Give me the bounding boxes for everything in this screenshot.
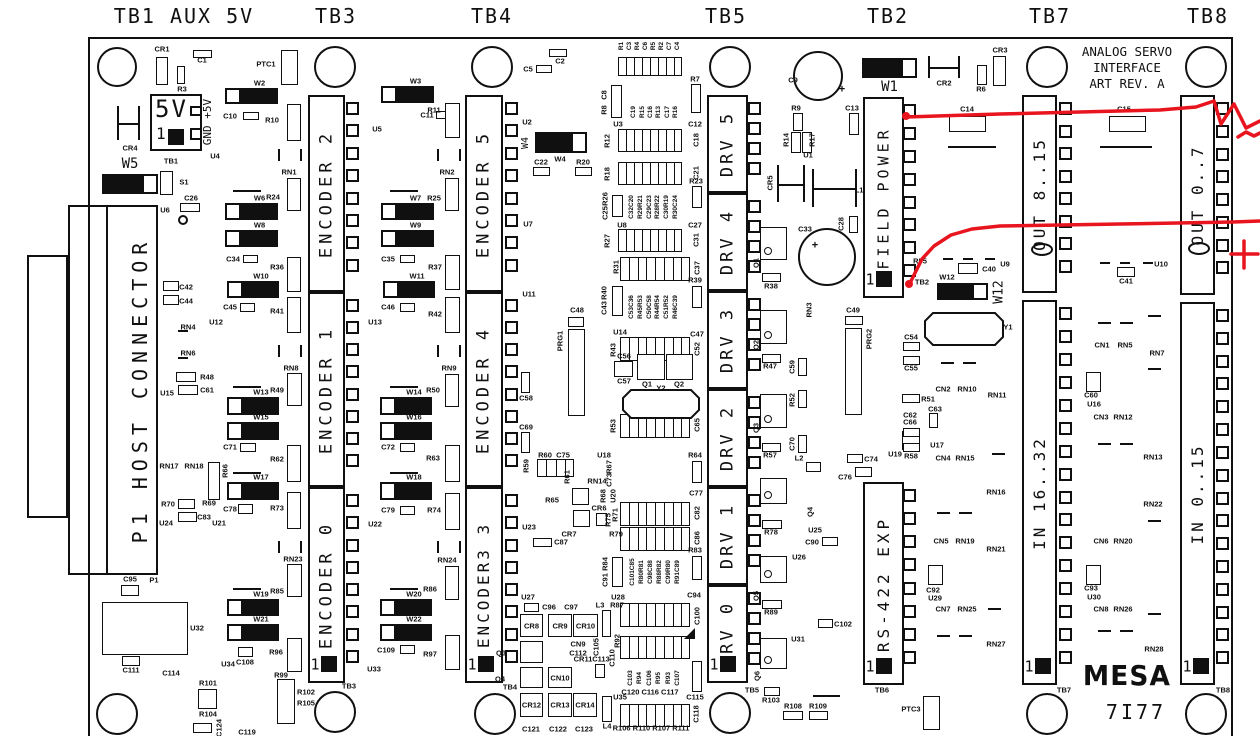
component-label: R58 (904, 452, 918, 460)
component-label: C109 (377, 646, 395, 654)
component-outline (793, 113, 803, 131)
label-tb2: TB2 (848, 6, 928, 26)
component-outline (568, 329, 585, 416)
component-ibeam (812, 169, 857, 207)
component-label: R14 (782, 133, 790, 147)
connector-label: ENCODER 4 (476, 325, 493, 453)
jumper-label: W6 (254, 194, 265, 202)
component-outline (208, 462, 220, 500)
pin (346, 192, 359, 205)
dash-mark (1098, 630, 1111, 632)
pcb-diagram: TB1 AUX 5V TB3 TB4 TB5 TB2 TB7 TB8 ANALO… (0, 0, 1260, 736)
pin (1059, 215, 1072, 228)
pin1-label: 1 (709, 658, 718, 673)
component-label: R12 (603, 134, 611, 148)
pin1-label: 1 (310, 658, 319, 673)
dash-mark (390, 588, 418, 590)
mounting-hole (1185, 46, 1227, 88)
component-outline (287, 178, 301, 211)
component-outline (121, 585, 139, 596)
resistor-array-divider (638, 603, 639, 627)
component-outline (287, 638, 302, 672)
resistor-array-divider (634, 162, 635, 185)
component-label: C27 (688, 221, 702, 229)
component-outline (612, 557, 623, 587)
resistor-array-divider (681, 414, 682, 438)
jumper-open-cell (225, 203, 241, 220)
component-label: C60 (1084, 391, 1098, 399)
component-ibeam (117, 106, 140, 140)
component-outline (102, 602, 188, 655)
component-label: C15 (1117, 105, 1131, 113)
component-label: CN9 (570, 640, 585, 648)
dash-mark (948, 146, 996, 148)
pin (346, 236, 359, 249)
dash-mark (963, 362, 976, 364)
connector-oval (1031, 243, 1053, 256)
dash-mark (985, 258, 995, 260)
component-label: U17 (930, 441, 944, 449)
resistor-array-divider (629, 636, 630, 659)
component-outline (533, 167, 550, 176)
component-outline (958, 263, 978, 274)
jumper-open-cell (142, 174, 158, 194)
component-label: C22 (534, 158, 548, 166)
pin (1216, 170, 1229, 183)
pin (903, 605, 916, 618)
pin (505, 583, 518, 596)
jumper-open-cell (381, 86, 397, 103)
jumper-label: W9 (410, 221, 421, 229)
component-label: C120 C116 C117 (621, 688, 678, 696)
component-label: R43 (609, 343, 617, 357)
component-label: PTC3 (901, 705, 920, 713)
tb-designator: TB4 (503, 683, 517, 691)
component-label: U16 (1087, 400, 1101, 408)
component-label: R95 (656, 672, 663, 684)
component-label: R67 (605, 460, 613, 474)
jumper-open-cell (227, 599, 243, 616)
dash-mark (233, 588, 261, 590)
component-label: R52 (788, 393, 796, 407)
component-outline (238, 504, 253, 514)
connector-label: RS-422 EXP (876, 515, 892, 651)
component-outline (903, 428, 920, 437)
pin (346, 583, 359, 596)
mounting-hole (1026, 46, 1068, 88)
component-outline (400, 443, 415, 452)
pin (505, 192, 518, 205)
resistor-array-divider (673, 502, 674, 526)
resistor-array-divider (626, 57, 627, 76)
component-outline (692, 661, 702, 692)
dash-mark (459, 345, 461, 357)
resistor-array-divider (658, 57, 659, 76)
resistor-array-divider (634, 129, 635, 152)
component-label: RN21 (986, 545, 1005, 553)
component-label: RN18 (184, 462, 203, 470)
component-label: RN3 (805, 302, 813, 317)
component-ibeam (928, 56, 960, 78)
component-label: C114 (162, 669, 180, 677)
component-label: C108 (236, 658, 254, 666)
component-outline (928, 565, 943, 585)
component-label: RN12 (1113, 413, 1132, 421)
pin (1216, 102, 1229, 115)
component-label: R3 (177, 85, 187, 93)
pin (1059, 170, 1072, 183)
jumper-open-cell (380, 624, 396, 641)
connector-label: ENCODER3 3 (476, 522, 492, 648)
component-label: C56 (617, 352, 631, 360)
pin (346, 388, 359, 401)
component-outline (760, 556, 787, 583)
component-label: R80R81 (639, 560, 646, 584)
dash-mark (233, 472, 261, 474)
pin (1059, 353, 1072, 366)
component-label: C7 (667, 42, 674, 50)
component-dot (764, 656, 772, 664)
connector-label: ENCODER 1 (318, 325, 335, 453)
tb-designator: TB2 (915, 278, 929, 286)
component-label: RN25 (957, 605, 976, 613)
component-label: C12 (688, 120, 702, 128)
resistor-array-divider (638, 502, 639, 526)
pin (748, 142, 761, 155)
dash-mark (233, 190, 261, 192)
component-label: U12 (209, 318, 223, 326)
component-label: C54 (904, 333, 918, 341)
component-label: RN5 (1117, 341, 1132, 349)
pin (346, 299, 359, 312)
component-outline (798, 390, 807, 408)
component-outline (524, 603, 539, 612)
resistor-array-divider (658, 229, 659, 252)
component-outline (287, 104, 301, 141)
component-label: PRG2 (865, 329, 873, 349)
pin (1216, 148, 1229, 161)
component-label: R18 (603, 167, 611, 181)
dash-mark (459, 541, 461, 553)
pin (903, 582, 916, 595)
component-label: C91 (601, 573, 609, 587)
component-label: C57 (617, 377, 631, 385)
component-label: C74 (864, 455, 878, 463)
component-label: C28 (837, 217, 845, 231)
pin (1059, 536, 1072, 549)
component-label: U7 (523, 220, 533, 228)
tb1-5v-label: 5V (155, 97, 188, 121)
component-label: C124 (215, 719, 223, 736)
component-label: R36 (270, 263, 284, 271)
component-label: R10 (265, 116, 279, 124)
component-label: R44R54 (655, 295, 662, 319)
component-label: CN6 (1093, 537, 1108, 545)
component-label: + (812, 241, 818, 252)
pin (505, 516, 518, 529)
component-outline (521, 372, 530, 393)
component-label: R49 (270, 386, 284, 394)
component-outline (977, 65, 987, 85)
resistor-array-divider (666, 229, 667, 252)
component-circle (798, 228, 856, 286)
component-label: U32 (190, 624, 204, 632)
label-tb8: TB8 (1168, 6, 1248, 26)
connector-label: DRV 3 (719, 307, 736, 373)
component-label: U2 (522, 118, 532, 126)
label-tb3: TB3 (296, 6, 376, 26)
pin (1059, 192, 1072, 205)
resistor-array-divider (642, 162, 643, 185)
component-label: C35 (381, 255, 395, 263)
pin1-marker (321, 656, 337, 672)
jumper-open-cell (380, 422, 396, 440)
connector-label: FIELD POWER (876, 126, 891, 269)
ibeam-bar (814, 188, 855, 190)
component-label: C13 (845, 104, 859, 112)
resistor-array-divider (666, 129, 667, 152)
component-outline (602, 610, 611, 637)
jumper-open-cell (972, 283, 988, 300)
component-label: Q3 (752, 423, 760, 433)
component-outline (845, 328, 862, 415)
pin1-label: 1 (1024, 660, 1033, 675)
component-label: C61 (200, 386, 214, 394)
dash-mark (959, 635, 972, 637)
component-outline (849, 216, 858, 233)
resistor-array-divider (681, 636, 682, 659)
component-dot (764, 331, 772, 339)
component-label: C47 (690, 330, 704, 338)
component-label: R79 (609, 530, 623, 538)
resistor-array-divider (673, 603, 674, 627)
pin (1059, 237, 1072, 250)
pin (1059, 559, 1072, 572)
pin (748, 200, 761, 213)
component-label: CN3 (1093, 413, 1108, 421)
component-outline (903, 342, 920, 351)
pin (505, 343, 518, 356)
component-label: Q3 (496, 649, 506, 657)
component-label: R45R53 (638, 295, 645, 319)
component-label: C46 (381, 303, 395, 311)
pin (1216, 537, 1229, 550)
component-label: RN22 (1143, 500, 1162, 508)
component-outline (287, 564, 302, 597)
jumper-open-cell (901, 58, 917, 78)
component-label: C101C85 (629, 558, 636, 585)
component-label: U10 (1154, 260, 1168, 268)
pin (748, 122, 761, 135)
component-label: C10 (223, 112, 237, 120)
component-label: C78 (223, 505, 237, 513)
component-label: R41 (270, 307, 284, 315)
component-label: R88R82 (657, 560, 664, 584)
component-label: R20 (576, 158, 590, 166)
pin (1216, 261, 1229, 274)
board-title-line1: ANALOG SERVO (1064, 46, 1190, 59)
board-title-line3: ART REV. A (1064, 78, 1190, 91)
jumper-label: W5 (122, 157, 139, 171)
component-label: R84 (601, 557, 609, 571)
pin (748, 436, 761, 449)
pin (505, 365, 518, 378)
component-label: C95 (123, 575, 137, 583)
mounting-hole (314, 691, 356, 733)
component-label: PTC1 (256, 60, 275, 68)
pin (903, 489, 916, 502)
component-label: U6 (160, 206, 170, 214)
component-label: U1 (803, 151, 813, 159)
component-label: R74 (427, 506, 441, 514)
pin (1216, 239, 1229, 252)
component-outline (949, 116, 986, 132)
pin (1059, 125, 1072, 138)
component-label: RN10 (957, 385, 976, 393)
component-label: L2 (795, 454, 804, 462)
component-label: R104 (199, 710, 217, 718)
pin (346, 494, 359, 507)
component-outline (238, 647, 253, 657)
component-label: RN27 (986, 640, 1005, 648)
component-label: C14 (960, 105, 974, 113)
component-outline (243, 255, 258, 263)
pin (748, 514, 761, 527)
component-label: + (839, 85, 845, 96)
dash-mark (943, 258, 953, 260)
resistor-array-divider (638, 414, 639, 438)
pin (346, 102, 359, 115)
pin (1059, 260, 1072, 273)
component-label: R8 (600, 105, 608, 115)
dash-mark (178, 330, 188, 332)
jumper-label: W19 (253, 590, 268, 598)
dash-mark (459, 149, 461, 161)
component-outline (400, 255, 415, 263)
component-label: CN7 (935, 605, 950, 613)
resistor-array-divider (664, 636, 665, 659)
component-dot (764, 415, 772, 423)
jumper-open-cell (380, 599, 396, 616)
component-label: C44 (179, 297, 193, 305)
resistor-array-divider (642, 129, 643, 152)
component-label: R53 (609, 419, 617, 433)
component-label: C32C20 (629, 195, 636, 219)
component-label: Q2 (674, 380, 684, 388)
component-label: CR6 (591, 504, 606, 512)
resistor-array-divider (626, 162, 627, 185)
jumper-open-cell (225, 88, 241, 104)
component-label: R23 (689, 177, 703, 185)
dash-mark (390, 190, 418, 192)
component-label: R105 (297, 699, 315, 707)
component-ibeam (777, 165, 805, 202)
component-outline (611, 85, 622, 118)
component-label: C115 (686, 693, 704, 701)
component-label: U18 (597, 451, 611, 459)
component-label: CN8 (1093, 605, 1108, 613)
component-outline (595, 664, 605, 678)
component-label: C93 (1084, 584, 1098, 592)
component-label: R64 (688, 451, 702, 459)
resistor-array-divider (638, 636, 639, 659)
component-label: R73 (270, 504, 284, 512)
component-outline (178, 499, 195, 509)
tb1-gnd-5v-label: GND +5V (202, 95, 214, 149)
jumper-label: W7 (410, 194, 421, 202)
pin (505, 605, 518, 618)
pin (1059, 376, 1072, 389)
component-outline (575, 167, 592, 176)
component-label: C76 (838, 473, 852, 481)
component-outline (929, 413, 938, 428)
component-outline (847, 454, 863, 463)
resistor-array-divider (650, 129, 651, 152)
component-label: L3 (596, 601, 605, 609)
dash-mark (437, 541, 439, 553)
component-label: C82 (693, 506, 701, 520)
component-label: C87 (554, 538, 568, 546)
jumper-open-cell (381, 203, 397, 220)
component-outline (902, 394, 920, 403)
pin (1216, 309, 1229, 322)
pin (1216, 193, 1229, 206)
component-label: R109 (809, 702, 827, 710)
component-outline (791, 132, 801, 153)
resistor-array-divider (681, 502, 682, 526)
component-label: U13 (368, 318, 382, 326)
component-label: C75 (556, 451, 570, 459)
resistor-array-divider (655, 502, 656, 526)
ibeam-bar (930, 67, 958, 69)
pin (903, 218, 916, 231)
connector-oval (1188, 242, 1210, 255)
component-label: C34 (226, 255, 240, 263)
p1-label: P1 HOST CONNECTOR (130, 237, 150, 544)
pin (505, 628, 518, 641)
component-label: C119 (238, 728, 256, 736)
resistor-array-divider (546, 459, 547, 477)
component-label: C122 (549, 725, 567, 733)
component-label: R16 (673, 106, 680, 118)
pin (1216, 332, 1229, 345)
pin (1059, 399, 1072, 412)
pin1-marker (1193, 658, 1209, 674)
jumper-open-cell (380, 482, 396, 500)
component-label: U24 (159, 519, 173, 527)
component-label: C98C88 (648, 560, 655, 584)
dash-mark (1120, 262, 1130, 264)
pin (1059, 422, 1072, 435)
component-outline (845, 316, 863, 325)
resistor-array-divider (664, 502, 665, 526)
component-label: P1 (149, 576, 158, 584)
component-label: CR12 (522, 701, 541, 709)
component-label: C96 (542, 603, 556, 611)
component-label: C66 (903, 418, 917, 426)
pin (903, 104, 916, 117)
component-label: CR14 (575, 701, 594, 709)
tb-designator: TB5 (745, 686, 759, 694)
component-label: C106 (647, 670, 654, 686)
component-outline (798, 435, 807, 453)
component-label: C97 (564, 603, 578, 611)
pin (748, 534, 761, 547)
component-outline (400, 506, 415, 515)
component-label: RN2 (439, 168, 454, 176)
resistor-array-divider (655, 414, 656, 438)
pin (748, 456, 761, 469)
